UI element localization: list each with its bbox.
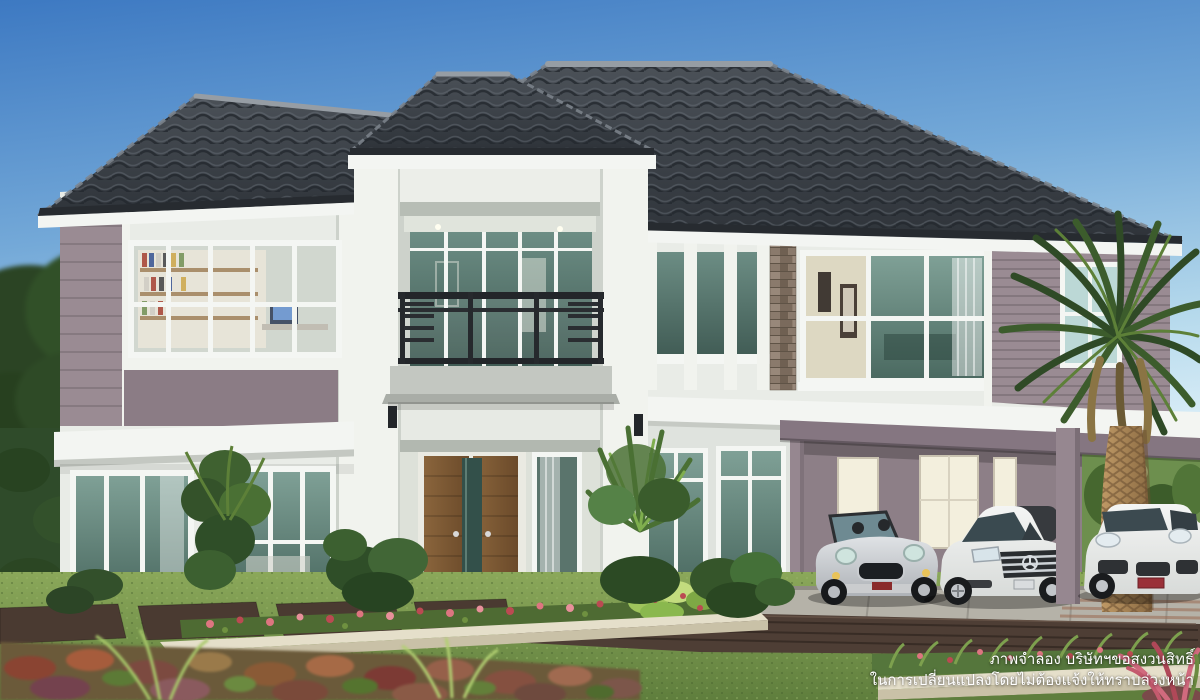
porsche-plate (1138, 578, 1164, 588)
mini-headlight (904, 545, 924, 561)
stone-accent-strip (770, 244, 796, 390)
study-corner-window (128, 240, 342, 358)
wall-sconce-mid (634, 414, 643, 436)
disclaimer-line1: ภาพจำลอง บริษัทฯขอสงวนสิทธิ์ (870, 649, 1194, 671)
scene (0, 0, 1200, 700)
mini-plate (872, 582, 892, 590)
upper-corner-window (798, 250, 992, 391)
porsche-headlight (1169, 529, 1191, 543)
mini-headlight (836, 548, 856, 564)
mini-grille (858, 562, 904, 580)
door-handle (485, 531, 491, 537)
disclaimer-text: ภาพจำลอง บริษัทฯขอสงวนสิทธิ์ ในการเปลี่ย… (870, 649, 1194, 693)
balcony (382, 216, 620, 410)
downlight (435, 224, 441, 230)
disclaimer-line2: ในการเปลี่ยนแปลงโดยไม่ต้องแจ้งให้ทราบล่ว… (870, 670, 1194, 692)
balcony-railing (398, 292, 604, 364)
door-handle (453, 531, 459, 537)
downlight (557, 226, 563, 232)
mauve-accent-panel (60, 208, 130, 426)
wall-sconce-left (388, 406, 397, 428)
house-rendering-image: ภาพจำลอง บริษัทฯขอสงวนสิทธิ์ ในการเปลี่ย… (0, 0, 1200, 700)
mercedes-headlight (972, 547, 1000, 562)
porsche-headlight (1096, 533, 1120, 547)
